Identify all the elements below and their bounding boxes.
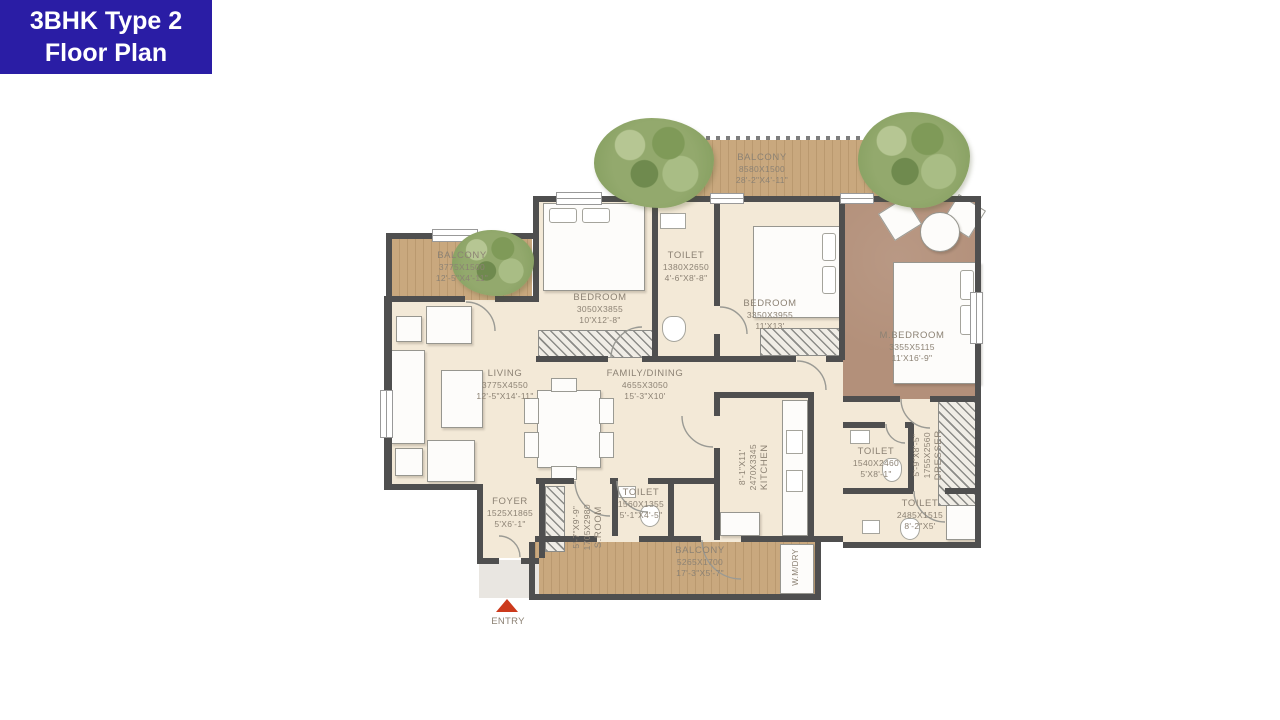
room-dim-mm: 8580X1500 [682, 164, 842, 175]
entry-arrow-icon [496, 599, 518, 612]
room-dim-ft: 5'-1"X4'-5" [598, 510, 684, 521]
room-dim-ft: 28'-2"X4'-11" [682, 175, 842, 186]
room-name: BALCONY [632, 545, 768, 557]
room-dim-ft: 15'-3"X10' [577, 391, 713, 402]
room-dim-mm: 3775X1500 [402, 262, 522, 273]
room-name: LIVING [445, 368, 565, 380]
room-dim-ft: 12'-5"X14'-11" [445, 391, 565, 402]
room-dim-mm: 2470X3345 [748, 412, 759, 522]
room-dim-mm: 3350X3955 [712, 310, 828, 321]
room-label-toilet-top: TOILET 1380X2650 4'-6"X8'-8" [646, 250, 726, 284]
room-name: W.M/DRY [791, 539, 801, 595]
room-label-toilet-small: TOILET 1560X1355 5'-1"X4'-5" [598, 487, 684, 521]
room-dim-mm: 1560X1355 [598, 499, 684, 510]
room-dim-mm: 1705X2980 [582, 477, 593, 577]
room-dim-ft: 12'-5"X4'-11" [402, 273, 522, 284]
room-dim-mm: 2485X1515 [874, 510, 966, 521]
room-dim-ft: 5'-7"X9'-9" [571, 477, 582, 577]
room-dim-mm: 1525X1865 [468, 508, 552, 519]
room-dim-ft: 17'-3"X5'-7" [632, 568, 768, 579]
room-label-balcony-left: BALCONY 3775X1500 12'-5"X4'-11" [402, 250, 522, 284]
room-dim-mm: 5265X1700 [632, 557, 768, 568]
room-label-mbedroom: M.BEDROOM 3355X5115 11'X16'-9" [852, 330, 972, 364]
room-name: TOILET [830, 446, 922, 458]
room-label-toilet-right: TOILET 2485X1515 8'-2"X5' [874, 498, 966, 532]
room-dim-ft: 8'-1"X11' [737, 412, 748, 522]
room-label-toilet-mid: TOILET 1540X2460 5'X8'-1" [830, 446, 922, 480]
room-name: BALCONY [682, 152, 842, 164]
room-dim-mm: 4655X3050 [577, 380, 713, 391]
room-name: ENTRY [476, 616, 540, 628]
room-name: DRESSER [933, 405, 945, 505]
room-dim-mm: 3355X5115 [852, 342, 972, 353]
room-dim-ft: 10'X12'-8" [540, 315, 660, 326]
room-label-living: LIVING 3775X4550 12'-5"X14'-11" [445, 368, 565, 402]
room-label-foyer: FOYER 1525X1865 5'X6'-1" [468, 496, 552, 530]
room-dim-ft: 5'X8'-1" [830, 469, 922, 480]
room-dim-ft: 11'X16'-9" [852, 353, 972, 364]
slider-door [840, 193, 874, 204]
entry-label: ENTRY [476, 616, 540, 628]
window [556, 192, 602, 205]
room-label-family-dining: FAMILY/DINING 4655X3050 15'-3"X10' [577, 368, 713, 402]
room-name: KITCHEN [759, 412, 771, 522]
room-name: M.BEDROOM [852, 330, 972, 342]
room-name: BEDROOM [540, 292, 660, 304]
room-dim-mm: 1755X2560 [922, 405, 933, 505]
room-label-kitchen: 8'-1"X11' 2470X3345 KITCHEN [737, 412, 771, 522]
floor-plan-page: 3BHK Type 2 Floor Plan [0, 0, 1280, 720]
tree [858, 112, 970, 208]
room-name: BALCONY [402, 250, 522, 262]
room-dim-ft: 5'X6'-1" [468, 519, 552, 530]
room-name: BEDROOM [712, 298, 828, 310]
window [380, 390, 393, 438]
room-label-balcony-top: BALCONY 8580X1500 28'-2"X4'-11" [682, 152, 842, 186]
room-dim-ft: 4'-6"X8'-8" [646, 273, 726, 284]
room-label-balcony-bottom: BALCONY 5265X1700 17'-3"X5'-7" [632, 545, 768, 579]
room-dim-mm: 3775X4550 [445, 380, 565, 391]
room-label-wm-dry: W.M/DRY [791, 539, 801, 595]
room-dim-ft: 8'-2"X5' [874, 521, 966, 532]
room-label-bedroom2: BEDROOM 3350X3955 11'X13' [712, 298, 828, 332]
room-dim-mm: 1380X2650 [646, 262, 726, 273]
room-name: FAMILY/DINING [577, 368, 713, 380]
room-label-dresser: 5'-9"X8'-5" 1755X2560 DRESSER [911, 405, 945, 505]
room-name: FOYER [468, 496, 552, 508]
room-dim-ft: 11'X13' [712, 321, 828, 332]
room-name: TOILET [646, 250, 726, 262]
room-name: TOILET [598, 487, 684, 499]
slider-door [710, 193, 744, 204]
room-name: TOILET [874, 498, 966, 510]
room-dim-ft: 5'-9"X8'-5" [911, 405, 922, 505]
room-dim-mm: 3050X3855 [540, 304, 660, 315]
room-label-bedroom1: BEDROOM 3050X3855 10'X12'-8" [540, 292, 660, 326]
walls-and-doors-layer [0, 0, 1280, 720]
room-dim-mm: 1540X2460 [830, 458, 922, 469]
